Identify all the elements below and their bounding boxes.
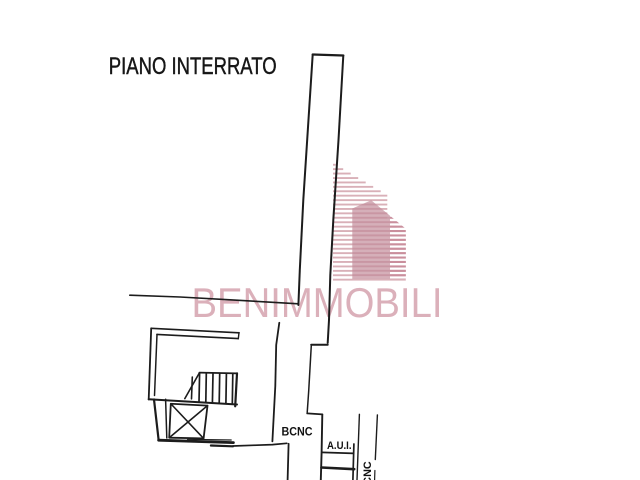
svg-text:A.U.I.: A.U.I.	[327, 440, 352, 452]
svg-text:BENIMMOBILI: BENIMMOBILI	[192, 279, 443, 326]
svg-text:BCNC: BCNC	[362, 461, 374, 480]
svg-text:PIANO INTERRATO: PIANO INTERRATO	[109, 54, 277, 80]
svg-text:BCNC: BCNC	[282, 424, 313, 438]
